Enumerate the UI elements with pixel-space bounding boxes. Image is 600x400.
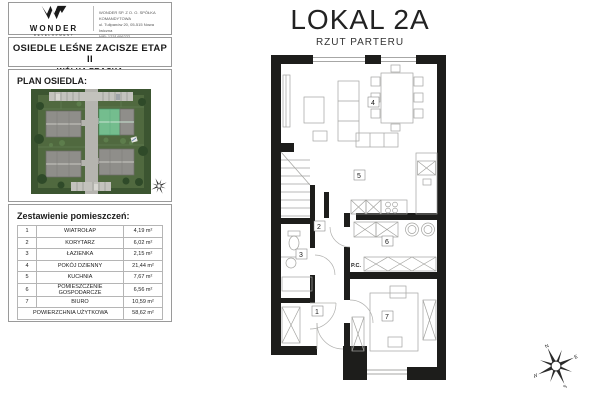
mini-compass-icon <box>149 176 169 196</box>
compass-s: S <box>563 384 569 388</box>
table-row: 7 BIURO 10,59 m² <box>18 296 163 308</box>
room-name: POKÓJ DZIENNY <box>37 260 124 272</box>
staircase <box>281 152 310 216</box>
room-label-7: 7 <box>385 314 389 321</box>
rooms-table: 1 WIATROŁAP 4,19 m² 2 KORYTARZ 6,02 m² 3… <box>17 225 163 320</box>
office-furniture <box>352 286 436 351</box>
wonder-logo-icon <box>39 5 69 20</box>
room-name: BIURO <box>37 296 124 308</box>
table-row: 4 POKÓJ DZIENNY 21,44 m² <box>18 260 163 272</box>
room-area: 6,02 m² <box>124 237 163 249</box>
room-label-2: 2 <box>317 224 321 231</box>
table-total-row: POWIERZCHNIA UŻYTKOWA 58,62 m² <box>18 308 163 320</box>
living-room-furniture <box>283 65 423 147</box>
page-subtitle: RZUT PARTERU <box>265 37 455 48</box>
compass-rose-icon: N E S W <box>534 344 578 388</box>
company-header: WONDER DEVELOPMENT WONDER SP. Z O. O. SP… <box>8 2 172 35</box>
company-logo: WONDER DEVELOPMENT <box>19 5 89 37</box>
room-label-1: 1 <box>315 309 319 316</box>
room-name: KUCHNIA <box>37 272 124 284</box>
total-area: 58,62 m² <box>124 308 163 320</box>
room-area: 10,59 m² <box>124 296 163 308</box>
table-row: 6 POMIESZCZENIE GOSPODARCZE 6,56 m² <box>18 283 163 296</box>
compass-w: W <box>534 372 539 380</box>
building-cluster-bottom-right <box>99 149 134 175</box>
room-name: KORYTARZ <box>37 237 124 249</box>
project-title: OSIEDLE LEŚNE ZACISZE ETAP II <box>9 43 171 65</box>
header-divider <box>93 6 94 31</box>
table-row: 3 ŁAZIENKA 2,15 m² <box>18 249 163 261</box>
company-name: WONDER <box>19 25 89 33</box>
site-plan-box: PLAN OSIEDLA: <box>8 69 172 202</box>
total-label: POWIERZCHNIA UŻYTKOWA <box>18 308 124 320</box>
room-no: 5 <box>18 272 37 284</box>
room-name: POMIESZCZENIE GOSPODARCZE <box>37 283 124 296</box>
vestibule-furniture <box>282 277 312 343</box>
utility-room-furniture <box>354 222 436 271</box>
company-info-line: WONDER SP. Z O. O. SPÓŁKA KOMANDYTOWA <box>99 10 167 22</box>
window <box>313 58 416 62</box>
building-cluster-bottom-left <box>46 151 81 177</box>
company-info: WONDER SP. Z O. O. SPÓŁKA KOMANDYTOWA ul… <box>99 10 167 40</box>
table-row: 2 KORYTARZ 6,02 m² <box>18 237 163 249</box>
site-plan-label: PLAN OSIEDLA: <box>17 76 171 86</box>
room-no: 4 <box>18 260 37 272</box>
compass-n: N <box>544 344 550 350</box>
room-label-5: 5 <box>357 173 361 180</box>
rooms-table-box: Zestawienie pomieszczeń: 1 WIATROŁAP 4,1… <box>8 204 172 322</box>
project-title-box: OSIEDLE LEŚNE ZACISZE ETAP II WÓLKA PRAC… <box>8 37 172 67</box>
building-cluster-top-left <box>46 111 81 137</box>
room-no: 1 <box>18 226 37 238</box>
floor-plan-drawing: 1 2 3 4 5 6 7 P.C. <box>266 55 452 393</box>
room-label-4: 4 <box>371 100 375 107</box>
table-row: 1 WIATROŁAP 4,19 m² <box>18 226 163 238</box>
rooms-table-title: Zestawienie pomieszczeń: <box>17 211 171 221</box>
room-area: 4,19 m² <box>124 226 163 238</box>
room-name: WIATROŁAP <box>37 226 124 238</box>
window <box>367 370 407 374</box>
company-info-line: ul. Tulipanów 20, 05-515 Nowa Iwiczna <box>99 22 167 34</box>
room-no: 6 <box>18 283 37 296</box>
building-cluster-top-right-highlighted <box>99 109 134 135</box>
room-name: ŁAZIENKA <box>37 249 124 261</box>
pc-label: P.C. <box>351 263 361 269</box>
room-area: 2,15 m² <box>124 249 163 261</box>
room-no: 3 <box>18 249 37 261</box>
room-label-3: 3 <box>299 252 303 259</box>
page-title: LOKAL 2A <box>265 4 455 36</box>
room-no: 7 <box>18 296 37 308</box>
kitchen-furniture <box>351 153 437 214</box>
room-no: 2 <box>18 237 37 249</box>
room-area: 6,56 m² <box>124 283 163 296</box>
room-area: 7,67 m² <box>124 272 163 284</box>
site-plan-image <box>31 89 151 194</box>
compass-e: E <box>573 354 578 361</box>
door-arc <box>310 227 373 349</box>
table-row: 5 KUCHNIA 7,67 m² <box>18 272 163 284</box>
room-area: 21,44 m² <box>124 260 163 272</box>
room-label-6: 6 <box>385 239 389 246</box>
